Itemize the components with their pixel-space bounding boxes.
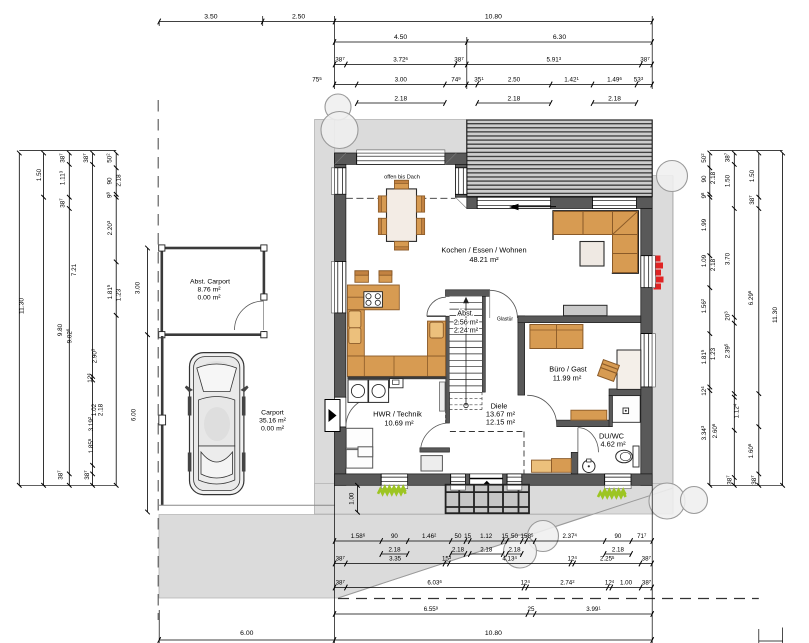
svg-text:3.00: 3.00 <box>135 281 142 294</box>
svg-text:Carport: Carport <box>261 410 284 417</box>
svg-text:48.21 m²: 48.21 m² <box>469 255 499 264</box>
svg-text:50: 50 <box>511 533 518 540</box>
svg-text:6.00: 6.00 <box>240 630 253 637</box>
svg-text:Büro / Gast: Büro / Gast <box>549 365 586 374</box>
svg-text:6.30: 6.30 <box>553 34 566 41</box>
svg-text:2.18: 2.18 <box>508 547 521 554</box>
svg-text:2.24 m²: 2.24 m² <box>454 326 479 335</box>
svg-text:1.99: 1.99 <box>701 218 708 231</box>
svg-text:Abst. Carport: Abst. Carport <box>190 279 230 286</box>
svg-text:1.23: 1.23 <box>710 347 717 360</box>
svg-text:90: 90 <box>391 533 398 540</box>
svg-text:2.18: 2.18 <box>98 403 105 416</box>
svg-text:1.12: 1.12 <box>480 533 493 540</box>
svg-text:4.62 m²: 4.62 m² <box>600 440 626 449</box>
svg-text:3.00: 3.00 <box>395 77 408 84</box>
svg-text:12.15 m²: 12.15 m² <box>486 418 516 427</box>
svg-text:9.80: 9.80 <box>57 323 64 336</box>
svg-text:10.80: 10.80 <box>485 630 502 637</box>
svg-text:0.00 m²: 0.00 m² <box>261 426 285 433</box>
svg-text:2.18: 2.18 <box>507 96 520 103</box>
svg-text:2.50: 2.50 <box>292 14 305 21</box>
svg-text:1.23: 1.23 <box>116 288 123 301</box>
svg-text:6.00: 6.00 <box>131 408 138 421</box>
svg-text:4.50: 4.50 <box>394 34 407 41</box>
svg-text:2.18: 2.18 <box>116 174 123 187</box>
svg-text:10.69 m²: 10.69 m² <box>384 419 414 428</box>
svg-text:90: 90 <box>614 533 621 540</box>
svg-text:2.50: 2.50 <box>508 77 521 84</box>
svg-text:2.18: 2.18 <box>710 258 717 271</box>
svg-text:1.09: 1.09 <box>701 254 708 267</box>
svg-text:3.35: 3.35 <box>389 556 402 563</box>
svg-text:1.50: 1.50 <box>725 174 732 187</box>
svg-text:Kochen / Essen / Wohnen: Kochen / Essen / Wohnen <box>441 246 526 255</box>
svg-text:1.50: 1.50 <box>749 169 756 182</box>
svg-text:11.30: 11.30 <box>19 298 26 314</box>
svg-text:11.99 m²: 11.99 m² <box>553 374 582 383</box>
svg-text:3.50: 3.50 <box>204 14 217 21</box>
svg-text:1.00: 1.00 <box>349 492 356 505</box>
svg-text:2.18: 2.18 <box>388 547 401 554</box>
svg-text:2.18: 2.18 <box>394 96 407 103</box>
svg-text:2.18: 2.18 <box>608 96 621 103</box>
svg-text:15: 15 <box>464 533 471 540</box>
svg-text:11.30: 11.30 <box>772 307 779 323</box>
svg-text:HWR / Technik: HWR / Technik <box>373 410 422 419</box>
svg-text:7.21: 7.21 <box>71 263 78 276</box>
svg-text:2.18: 2.18 <box>710 171 717 184</box>
svg-text:90: 90 <box>701 175 708 183</box>
svg-text:15: 15 <box>501 533 508 540</box>
svg-text:25: 25 <box>528 606 535 613</box>
svg-text:8.76 m²: 8.76 m² <box>197 287 221 294</box>
svg-text:1.00: 1.00 <box>620 580 633 587</box>
svg-text:offen bis Dach: offen bis Dach <box>384 175 420 181</box>
svg-text:Abst.: Abst. <box>457 309 473 318</box>
svg-text:1.50: 1.50 <box>36 168 43 181</box>
svg-text:10.80: 10.80 <box>485 14 502 21</box>
svg-text:50: 50 <box>455 533 462 540</box>
svg-text:35.16 m²: 35.16 m² <box>259 418 287 425</box>
svg-text:2.18: 2.18 <box>612 547 625 554</box>
svg-text:90: 90 <box>107 177 114 185</box>
svg-text:2.18: 2.18 <box>452 547 465 554</box>
svg-text:3.70: 3.70 <box>725 252 732 265</box>
svg-text:2.18: 2.18 <box>480 547 493 554</box>
svg-text:Glastür: Glastür <box>497 317 513 323</box>
svg-text:0.00 m²: 0.00 m² <box>197 295 221 302</box>
